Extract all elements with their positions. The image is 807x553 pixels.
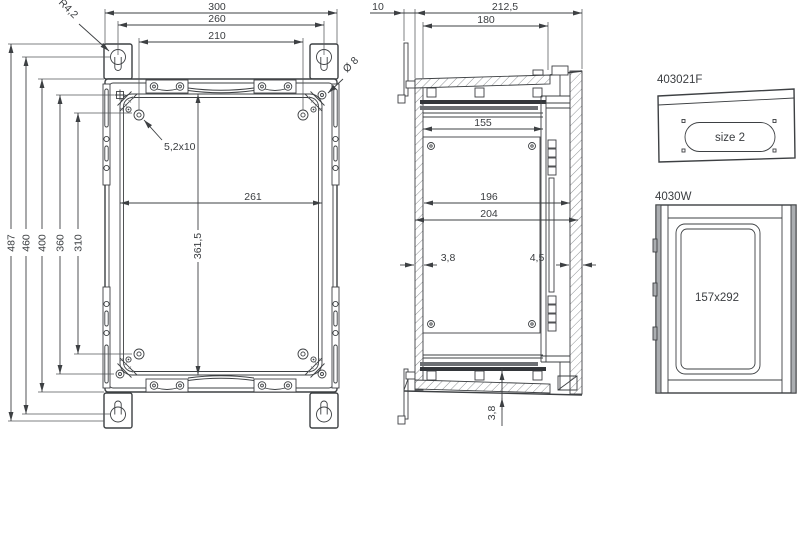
- dim-body-depth: 180: [477, 14, 495, 26]
- dim-screw-spacing-height: 360: [55, 234, 67, 252]
- label-corner-radius: R4,2: [56, 0, 80, 21]
- dim-back-wall-thickness: 3,8: [441, 252, 456, 264]
- front-view: 300 260 210 261 361,5 487 4: [6, 0, 362, 428]
- enclosure-drawing: 300 260 210 261 361,5 487 4: [0, 0, 807, 553]
- dim-lid-gap: 3,8: [486, 406, 498, 421]
- dim-overall-height: 487: [6, 234, 18, 252]
- lid-clip-top-right: [254, 80, 296, 93]
- lid-clip-top-left: [146, 80, 188, 93]
- wall-flange-bottom: [398, 369, 415, 424]
- dim-mounting-width: 260: [208, 13, 226, 25]
- dim-front-wall-thickness: 4,5: [530, 252, 545, 264]
- flange-size-label: size 2: [715, 132, 745, 144]
- dim-body-height: 400: [37, 234, 49, 252]
- dim-slot-spacing-width: 210: [208, 30, 226, 42]
- edge-plate-right-top: [332, 84, 339, 185]
- label-hole-diameter: Ø 8: [341, 55, 362, 76]
- hinge-column: [548, 140, 556, 331]
- lid-clip-bottom-left: [146, 379, 188, 392]
- corner-hole-bottom-left: [116, 370, 124, 378]
- lid-clip-bottom-right: [254, 379, 296, 392]
- top-wall-section: [415, 75, 550, 88]
- corner-hole-bottom-right: [318, 370, 326, 378]
- dim-slot-spacing-height: 310: [73, 234, 85, 252]
- flange-part-number: 403021F: [657, 74, 702, 86]
- enclosure-body-outline: [105, 79, 337, 392]
- front-left-dimensions: 487 460 400 360 310: [6, 44, 85, 421]
- detail-view-flange: 403021F size 2: [657, 74, 795, 162]
- dim-inner-width: 261: [244, 191, 262, 203]
- mounting-foot-bottom-right: [310, 393, 338, 428]
- dim-mounting-height: 460: [21, 234, 33, 252]
- dim-plate-clearance: 155: [474, 117, 492, 129]
- corner-hole-top-right: [318, 91, 326, 99]
- technical-drawing-canvas: 300 260 210 261 361,5 487 4: [0, 0, 807, 553]
- mounting-foot-bottom-left: [104, 393, 132, 428]
- edge-plate-left-top: [103, 84, 110, 185]
- label-slot-size: 5,2x10: [164, 141, 196, 153]
- corner-screw-top-left: [115, 90, 126, 101]
- dim-inner-height: 361,5: [192, 233, 204, 259]
- edge-plate-right-bottom: [332, 287, 339, 388]
- back-wall-section: [415, 80, 423, 390]
- side-view: 10 212,5 180 155 196 204 3,8 4,5 3,8: [370, 1, 596, 426]
- edge-plate-left-bottom: [103, 287, 110, 388]
- dim-flange-offset: 10: [372, 1, 384, 13]
- window-part-number: 4030W: [655, 191, 692, 203]
- wall-flange-top: [398, 43, 415, 103]
- window-size-label: 157x292: [695, 292, 739, 304]
- dim-inner-depth: 196: [480, 191, 498, 203]
- dim-outer-depth: 204: [480, 208, 498, 220]
- front-wall-section: [570, 71, 582, 394]
- detail-view-window: 4030W 157x292: [653, 191, 796, 393]
- dim-overall-width: 300: [208, 1, 226, 13]
- dim-overall-depth: 212,5: [492, 1, 518, 13]
- mounting-plate-section: [423, 137, 540, 333]
- front-top-dimensions: 300 260 210: [105, 1, 337, 42]
